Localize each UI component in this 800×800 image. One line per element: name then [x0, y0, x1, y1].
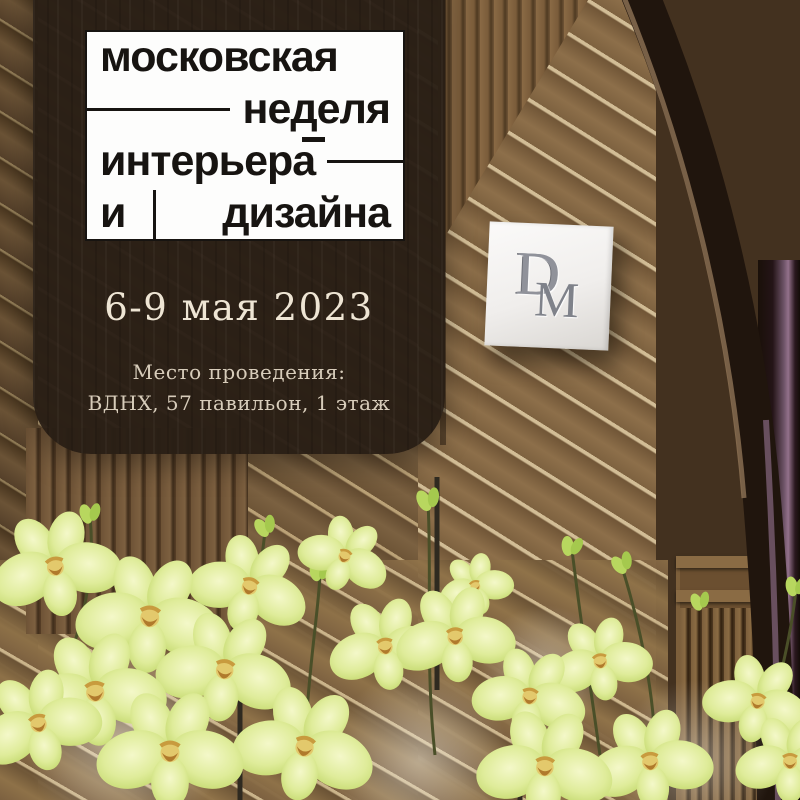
venue-label: Место проведения: [33, 360, 445, 384]
grille-top-rail [676, 556, 760, 568]
logo-row-3: интерьера [87, 136, 403, 188]
grille-mid-rail [676, 590, 760, 602]
logo-line-4-right: дизайна [222, 192, 403, 235]
logo-box: московская неделя интерьера и дизайна [85, 30, 405, 241]
logo-row-2: неделя [87, 84, 403, 136]
grille-slats [680, 608, 756, 800]
logo-vertical-rule [153, 190, 156, 239]
wood-slats-left [26, 428, 248, 634]
dm-wall-sign: D M [484, 221, 613, 350]
logo-rule-right [327, 160, 403, 163]
dm-monogram: D M [507, 242, 591, 329]
logo-row-4: и дизайна [87, 187, 403, 239]
glossy-railing-edge [758, 260, 800, 800]
venue-line: ВДНХ, 57 павильон, 1 этаж [33, 391, 445, 415]
event-poster: 6-9 мая 2023 Место проведения: ВДНХ, 57 … [0, 0, 800, 800]
monogram-letter-m: M [533, 269, 580, 329]
logo-accent-bar [302, 137, 325, 142]
logo-row-1: московская [87, 32, 403, 84]
logo-line-2: неделя [242, 88, 403, 131]
wood-grille-panel [676, 556, 760, 800]
logo-line-3: интерьера [87, 140, 315, 183]
logo-line-1: московская [87, 36, 338, 79]
logo-line-4-left: и [87, 192, 125, 235]
event-dates: 6-9 мая 2023 [33, 286, 445, 329]
logo-rule-left [87, 108, 230, 111]
